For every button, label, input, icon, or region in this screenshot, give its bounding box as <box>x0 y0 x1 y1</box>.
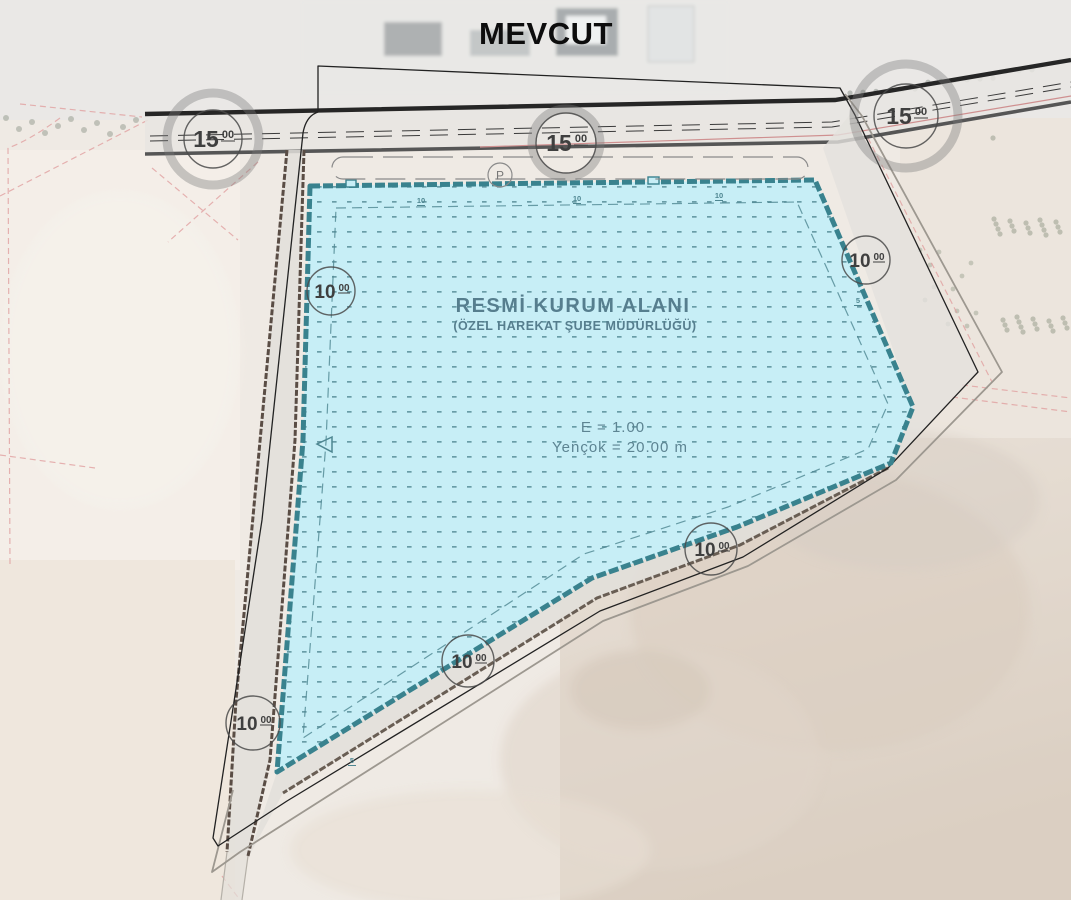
marker-sup: 00 <box>475 653 487 664</box>
zone-border-tab <box>346 180 356 187</box>
marker-sup: 00 <box>915 106 927 118</box>
page-title: MEVCUT <box>479 16 613 51</box>
setback-tick: 10 <box>715 191 723 201</box>
marker-sup: 00 <box>222 129 234 141</box>
zone-hmax-label: Yençok = 20.00 m <box>552 439 688 456</box>
zone-subtitle: (ÖZEL HAREKAT ŞUBE MÜDÜRLÜĞÜ) <box>453 318 696 333</box>
parking-label: P <box>496 169 504 183</box>
marker-value: 10 <box>849 251 870 272</box>
marker-sup: 00 <box>718 541 730 552</box>
zone-name: RESMİ KURUM ALANI <box>456 294 691 317</box>
marker-value: 10 <box>694 540 715 561</box>
zoning-map: P 10101055 15001500150010001000100010001… <box>0 0 1071 900</box>
marker-value: 15 <box>193 126 219 152</box>
marker-value: 10 <box>314 282 335 303</box>
marker-value: 10 <box>451 652 472 673</box>
zone-far-label: E = 1.00 <box>581 419 645 436</box>
zone-border-tab <box>648 177 659 184</box>
setback-tick-label: 5 <box>350 756 354 765</box>
marker-sup: 00 <box>873 252 885 263</box>
setback-tick-label: 10 <box>573 194 581 203</box>
setback-tick: 10 <box>417 196 425 206</box>
marker-sup: 00 <box>575 133 587 145</box>
setback-tick: 10 <box>573 194 581 204</box>
marker-value: 15 <box>546 130 572 156</box>
setback-tick-label: 5 <box>856 296 860 305</box>
marker-sup: 00 <box>260 715 272 726</box>
marker-value: 15 <box>886 103 912 129</box>
marker-value: 10 <box>236 714 257 735</box>
setback-tick-label: 10 <box>417 196 425 205</box>
marker-sup: 00 <box>338 283 350 294</box>
setback-tick-label: 10 <box>715 191 723 200</box>
